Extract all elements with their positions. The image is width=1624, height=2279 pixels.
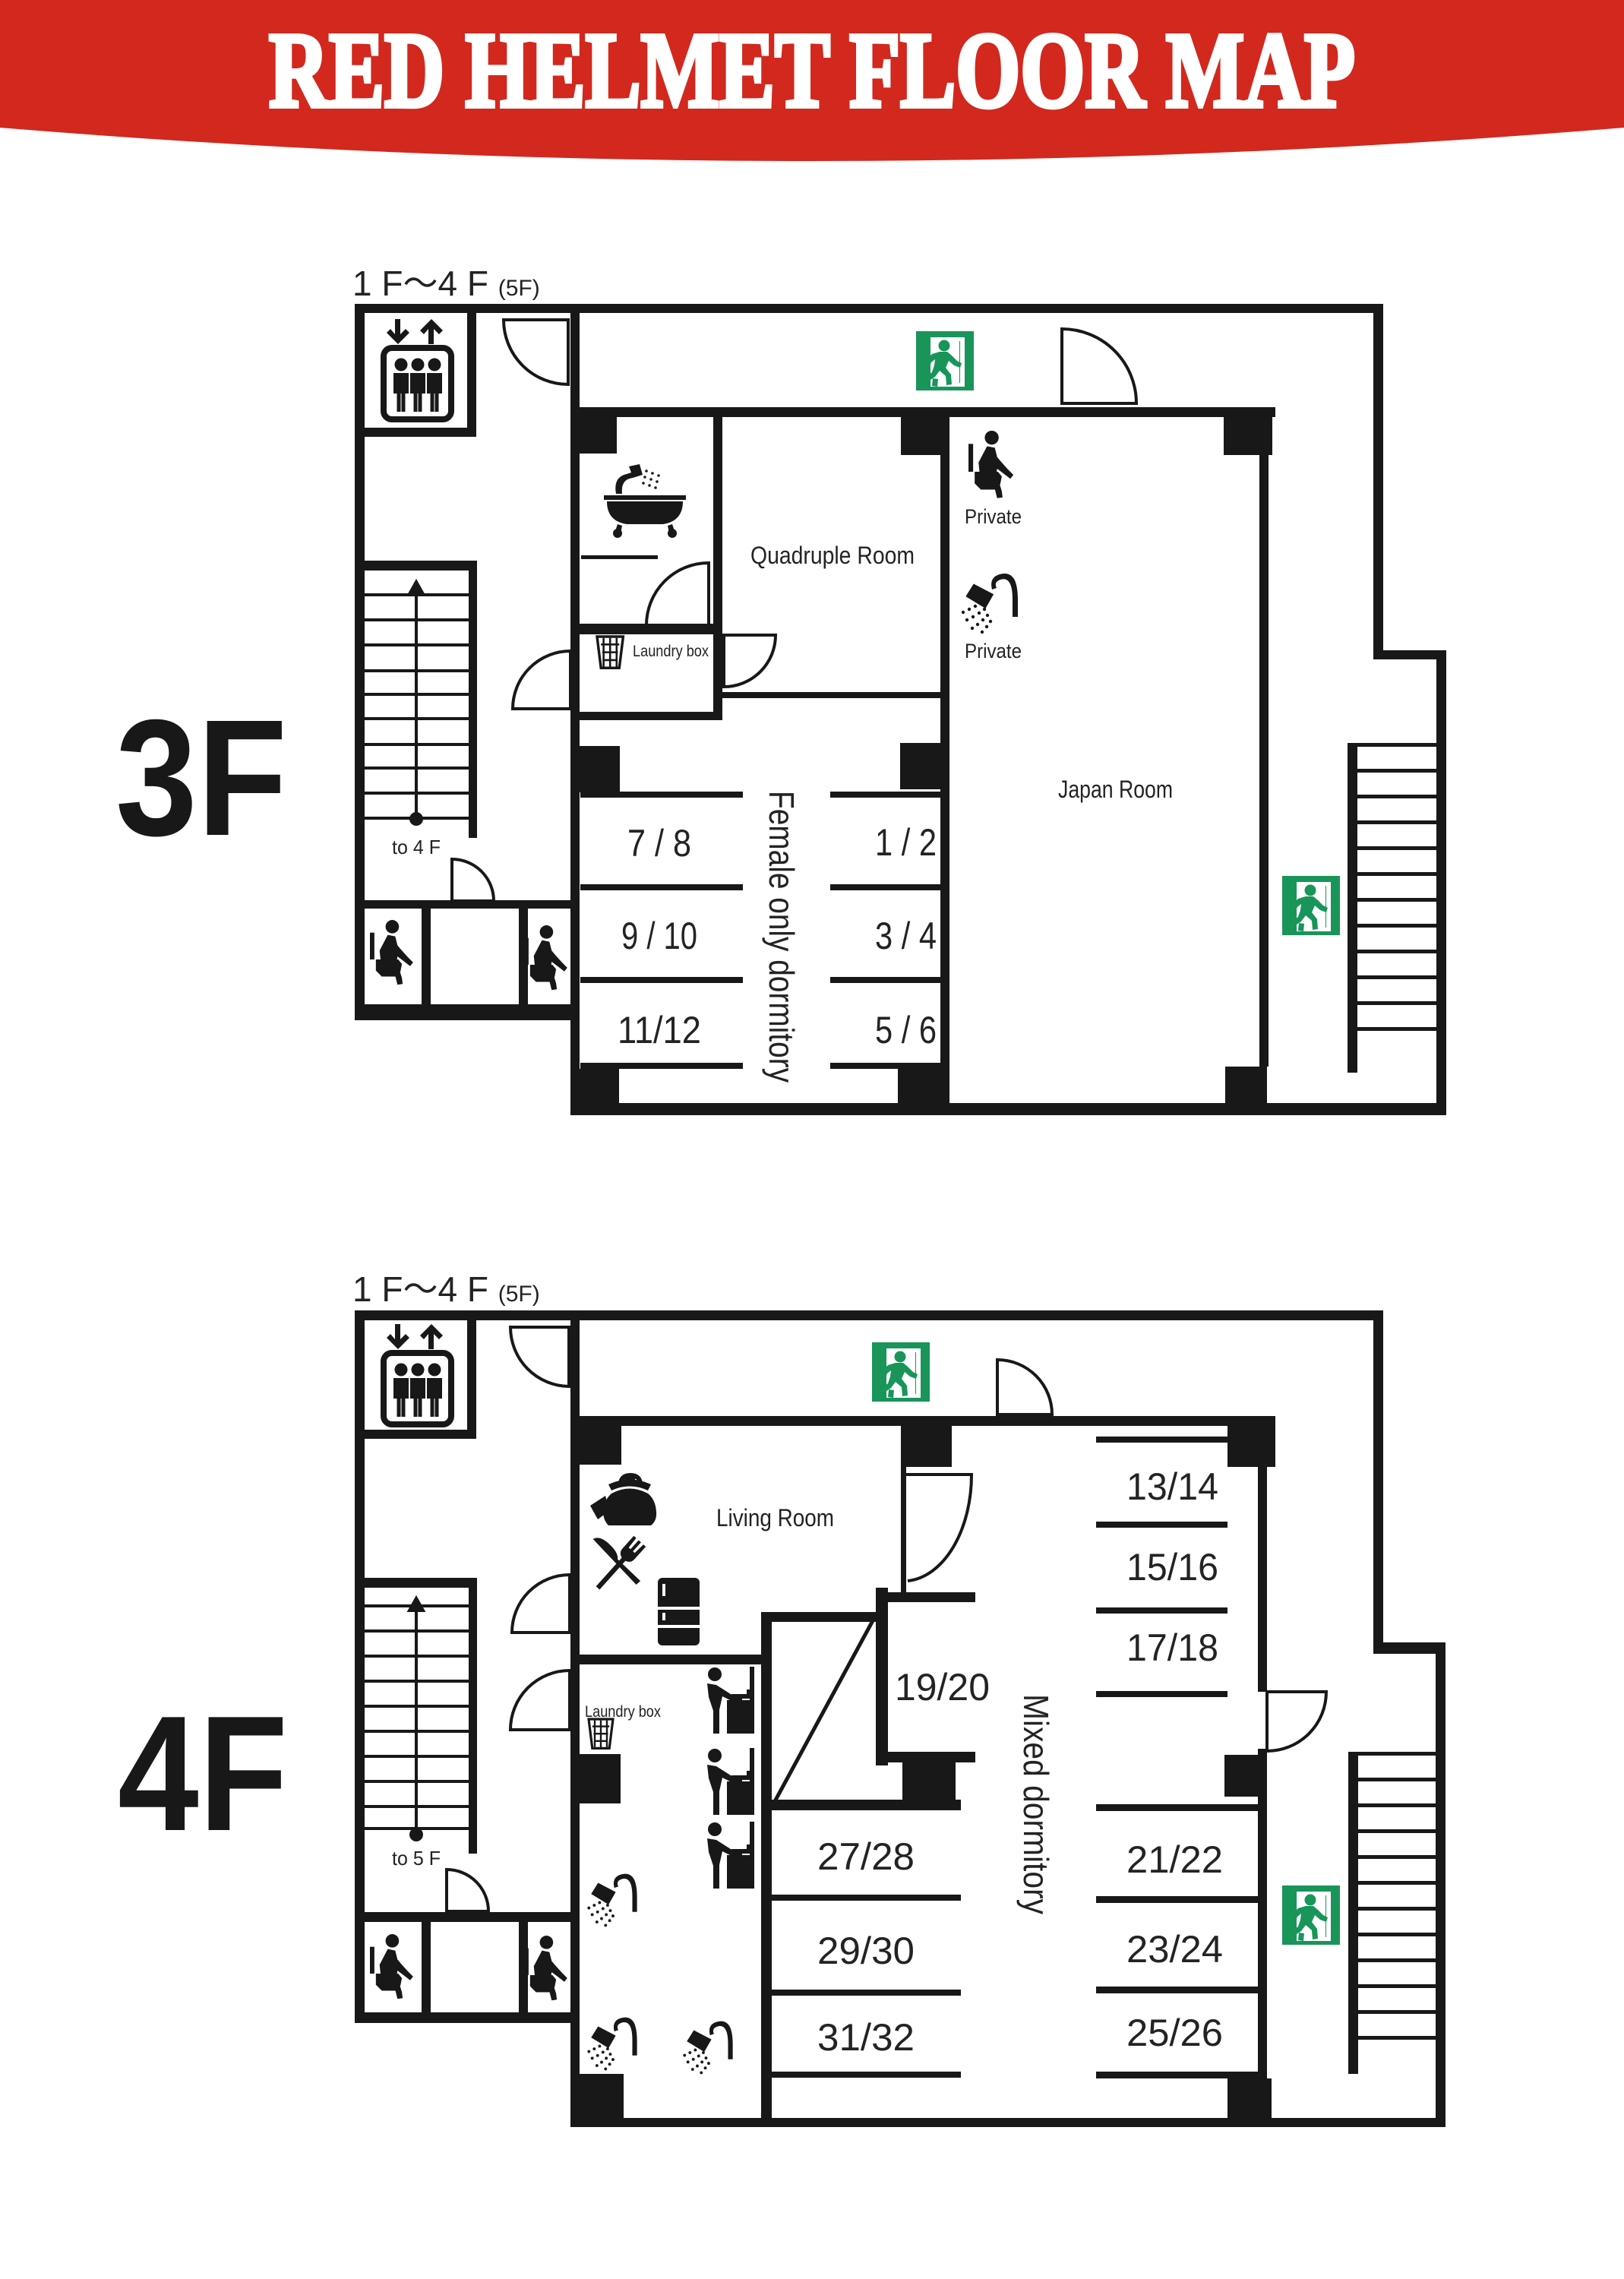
svg-text:7 / 8: 7 / 8: [627, 822, 691, 865]
svg-text:27/28: 27/28: [817, 1835, 915, 1878]
svg-text:Quadruple Room: Quadruple Room: [750, 542, 915, 569]
svg-text:Japan Room: Japan Room: [1058, 776, 1173, 803]
svg-text:19/20: 19/20: [895, 1666, 990, 1708]
svg-text:25/26: 25/26: [1126, 2012, 1223, 2054]
svg-text:RED HELMET FLOOR MAP: RED HELMET FLOOR MAP: [269, 10, 1355, 130]
svg-text:5 / 6: 5 / 6: [875, 1009, 937, 1051]
svg-text:Female only dormitory: Female only dormitory: [762, 791, 801, 1083]
svg-text:to 5 F: to 5 F: [392, 1847, 441, 1870]
svg-text:31/32: 31/32: [817, 2016, 915, 2059]
svg-text:4F: 4F: [118, 1681, 288, 1865]
svg-text:Laundry box: Laundry box: [633, 643, 709, 660]
svg-text:1 / 2: 1 / 2: [875, 821, 937, 864]
svg-text:15/16: 15/16: [1126, 1546, 1218, 1588]
svg-text:3 / 4: 3 / 4: [875, 915, 937, 957]
svg-text:23/24: 23/24: [1126, 1928, 1223, 1971]
svg-text:29/30: 29/30: [817, 1930, 915, 1972]
svg-text:Living Room: Living Room: [716, 1504, 834, 1531]
svg-text:17/18: 17/18: [1126, 1626, 1218, 1669]
svg-text:Mixed dormitory: Mixed dormitory: [1016, 1694, 1056, 1914]
svg-text:9 / 10: 9 / 10: [621, 915, 697, 957]
svg-text:Private: Private: [965, 640, 1022, 662]
svg-text:3F: 3F: [115, 686, 287, 871]
svg-text:to 4 F: to 4 F: [392, 836, 441, 858]
svg-text:11/12: 11/12: [618, 1009, 701, 1051]
svg-text:21/22: 21/22: [1126, 1838, 1223, 1881]
svg-text:13/14: 13/14: [1126, 1465, 1218, 1508]
svg-text:Private: Private: [965, 505, 1022, 528]
